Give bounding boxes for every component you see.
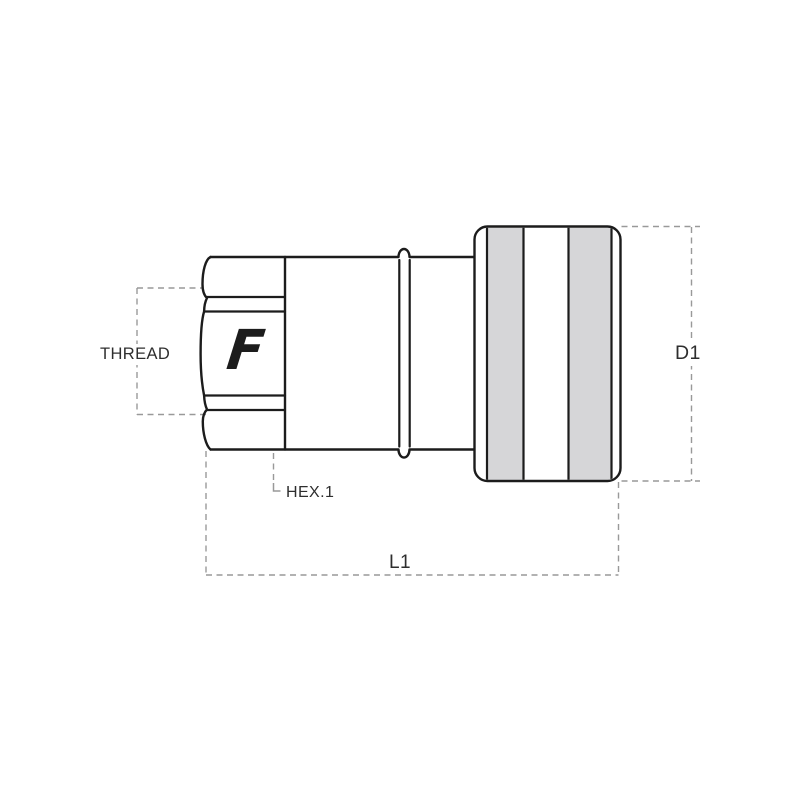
faster-brand-logo-f: F bbox=[224, 323, 267, 378]
sleeve bbox=[475, 225, 621, 483]
body-bottom-line bbox=[211, 450, 475, 458]
coupling-technical-drawing: THREAD HEX.1 L1 D1 F bbox=[0, 0, 800, 800]
body-top-line bbox=[211, 249, 475, 257]
d1-dimension-label: D1 bbox=[673, 342, 703, 366]
sleeve-band-left bbox=[487, 227, 524, 481]
thread-dimension-label: THREAD bbox=[98, 344, 172, 365]
hex-nut-left-edge bbox=[201, 257, 211, 450]
sleeve-band-right bbox=[569, 227, 612, 481]
l1-dimension-label: L1 bbox=[387, 551, 413, 574]
drawing-geometry bbox=[0, 0, 800, 800]
hex1-leader-line bbox=[274, 453, 281, 491]
hex1-dimension-label: HEX.1 bbox=[284, 483, 336, 503]
